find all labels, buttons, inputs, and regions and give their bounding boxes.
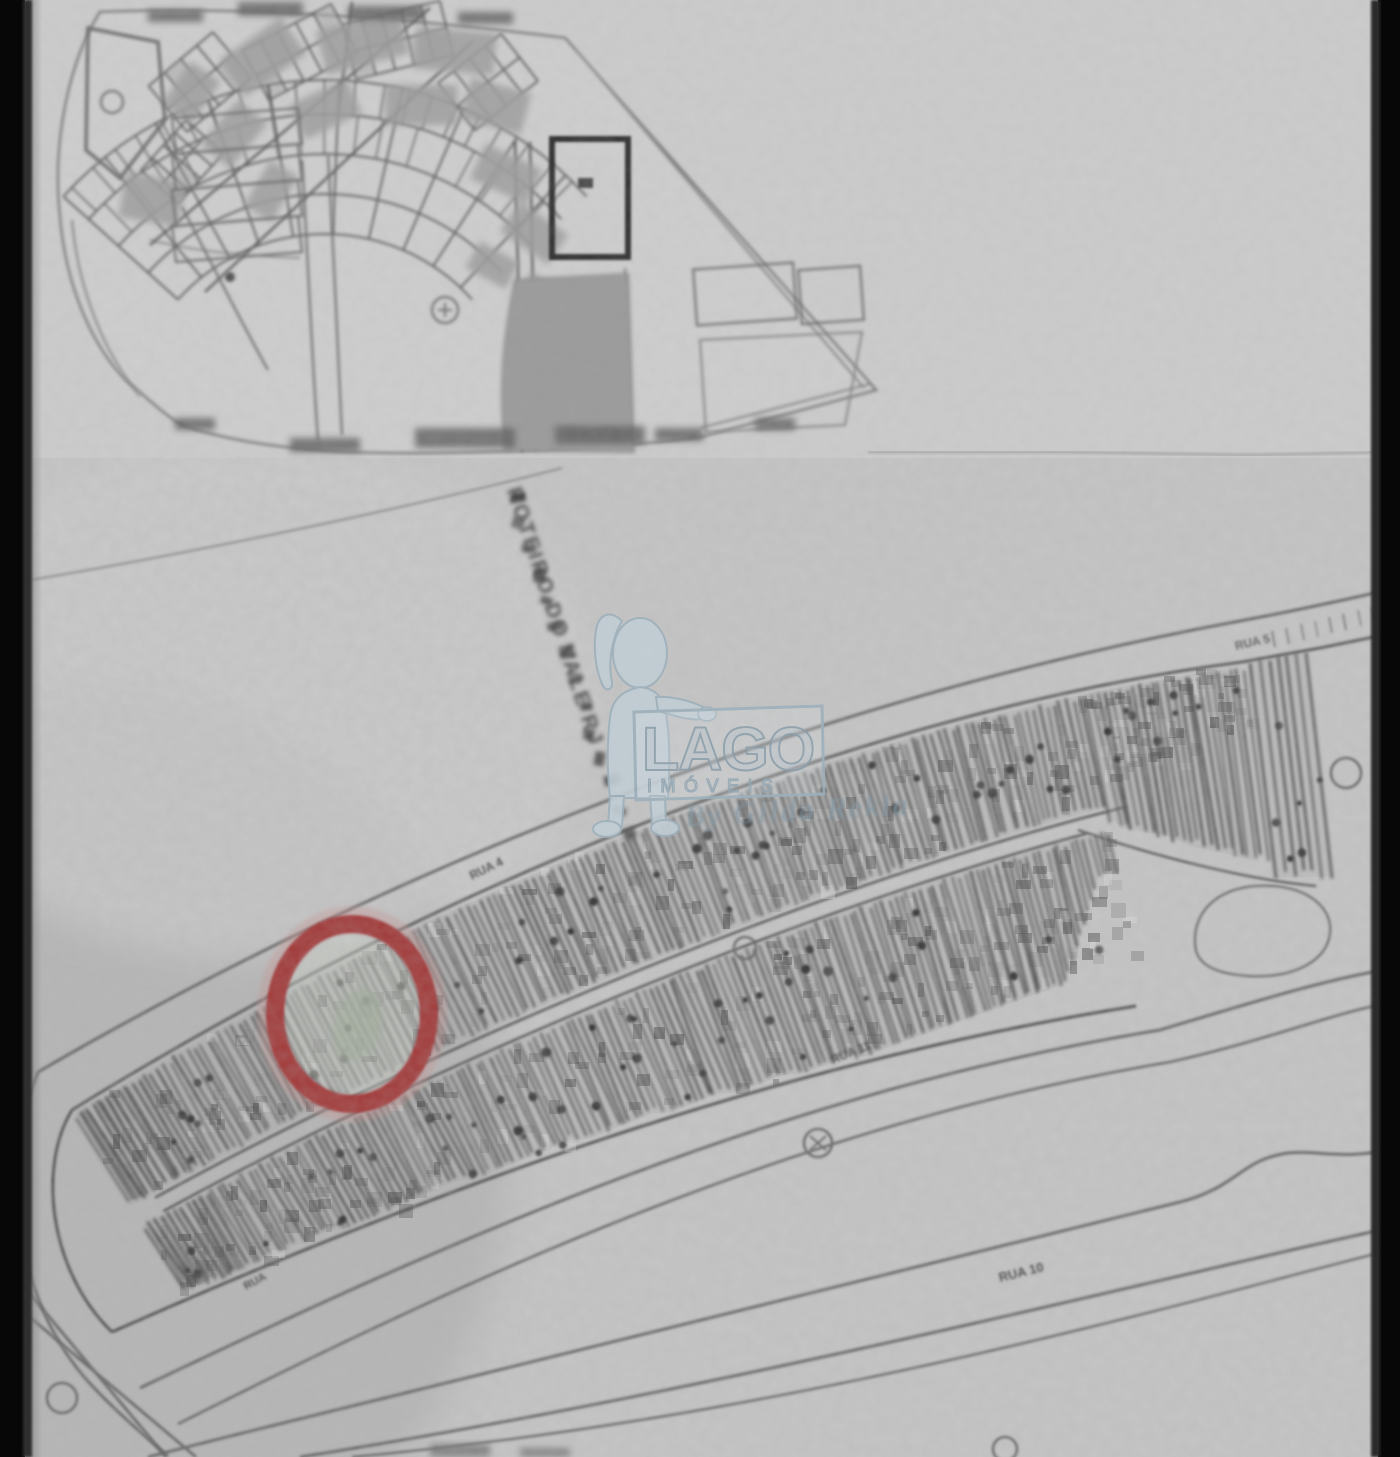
svg-text:LAGO: LAGO — [642, 715, 814, 783]
svg-text:IMÓVEIS: IMÓVEIS — [647, 775, 782, 796]
